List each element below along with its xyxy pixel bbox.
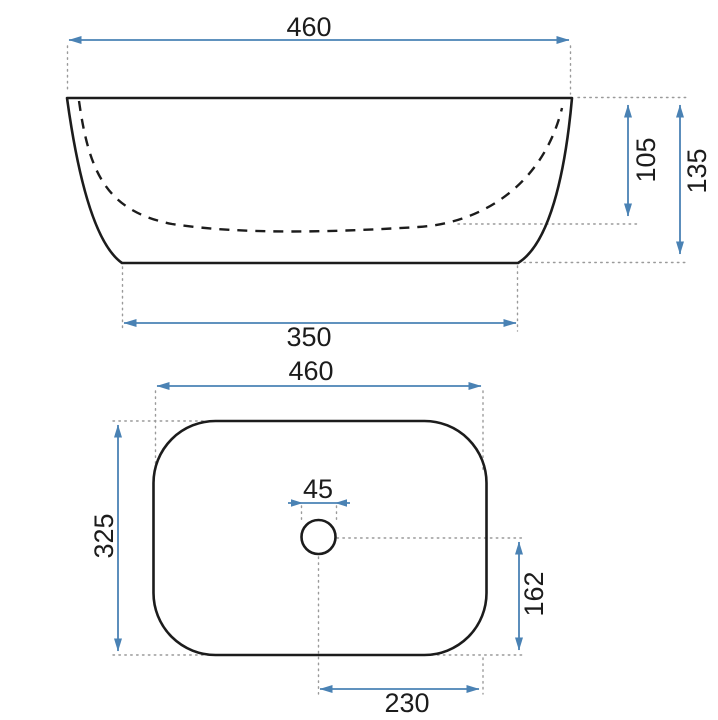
side-elevation-view: 460 105 135 350 <box>67 12 712 352</box>
dimension-value: 162 <box>519 571 549 616</box>
washbasin-dimension-drawing: 460 105 135 350 <box>0 0 718 720</box>
dimension-basin-depth: 105 <box>628 105 661 216</box>
dimension-plan-depth: 325 <box>89 425 119 651</box>
dimension-drain-diameter: 45 <box>288 474 350 507</box>
dimension-value: 325 <box>89 513 119 558</box>
drain-hole <box>302 520 336 554</box>
dimension-plan-width: 460 <box>157 356 481 386</box>
dimension-overall-height: 135 <box>680 105 712 254</box>
basin-inner-contour-dashed <box>79 101 562 232</box>
top-plan-view: 460 325 45 162 230 <box>89 356 549 718</box>
dimension-value: 230 <box>384 688 429 718</box>
dimension-value: 460 <box>286 12 331 42</box>
dimension-drain-to-side-edge: 230 <box>320 688 479 718</box>
washbasin-plan-outline <box>154 421 487 655</box>
extension-lines <box>68 46 690 331</box>
technical-drawing-page: 460 105 135 350 <box>0 0 718 720</box>
dimension-value: 135 <box>682 148 712 193</box>
dimension-value: 105 <box>631 137 661 182</box>
basin-outer-profile <box>67 98 572 263</box>
dimension-side-width: 460 <box>69 12 569 42</box>
dimension-base-width: 350 <box>124 322 516 352</box>
dimension-drain-to-rear-edge: 162 <box>519 542 549 650</box>
dimension-value: 45 <box>303 474 333 504</box>
dimension-value: 460 <box>288 356 333 386</box>
dimension-value: 350 <box>286 322 331 352</box>
